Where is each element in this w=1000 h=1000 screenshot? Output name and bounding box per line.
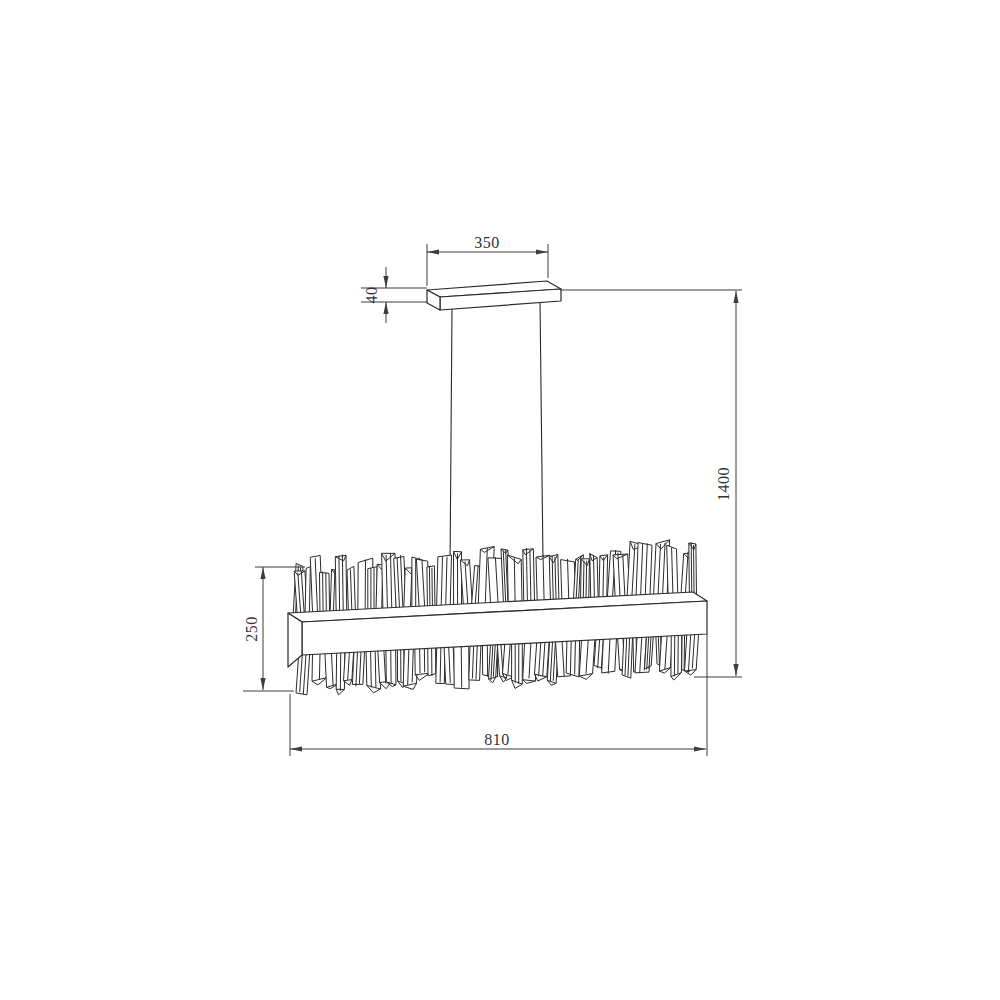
suspension-wires [450,300,543,570]
dim-label-body-width: 810 [484,731,510,748]
dim-canopy-thickness: 40 [361,267,428,323]
dim-label-canopy-width: 350 [474,234,500,251]
suspension-wire-right [540,300,543,562]
dim-label-canopy-thickness: 40 [363,287,380,304]
suspension-wire-left [450,309,452,570]
dimension-drawing-canvas: 350 40 1400 250 810 [0,0,1000,1000]
dim-label-body-height: 250 [243,616,260,642]
dim-canopy-width: 350 [427,234,548,286]
dim-label-overall-drop: 1400 [715,467,732,501]
ceiling-canopy [427,281,561,310]
